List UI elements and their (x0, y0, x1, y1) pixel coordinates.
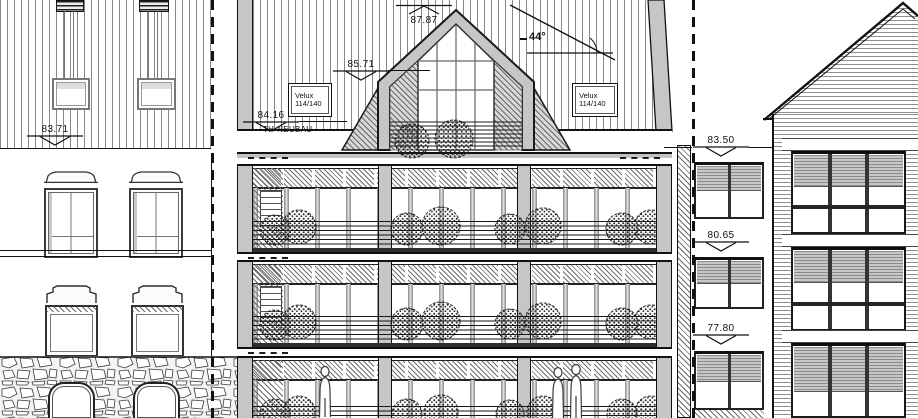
slab-dashes (620, 157, 660, 159)
window-shade (794, 155, 903, 187)
window-sill-hatch (694, 410, 764, 418)
elevation-drawing: 83.71 (0, 0, 918, 418)
window-mullion (828, 250, 832, 329)
left-building-window-lower (131, 280, 184, 357)
elevation-marker-main-ridge: 85.71 (333, 59, 389, 81)
window-pediment (129, 168, 183, 183)
window-mullion (865, 250, 869, 329)
roof-cheek (342, 88, 378, 150)
person-pair-figure (546, 363, 592, 418)
main-building-right-wall (656, 131, 672, 418)
marker-extension-line (388, 70, 430, 71)
stair-window (694, 257, 764, 309)
level-arrow-icon (27, 135, 83, 146)
window-glass (50, 314, 93, 352)
level-arrow-icon (333, 70, 389, 81)
stone-base (0, 356, 237, 418)
right-building-gable (760, 0, 918, 122)
right-building-window (791, 247, 906, 331)
window-mullion (828, 154, 832, 232)
window-frame (131, 305, 184, 357)
window-mullion (828, 346, 832, 416)
marker-extension-line (664, 147, 692, 148)
balcony-railing (253, 221, 656, 248)
window-frame (129, 188, 183, 258)
elevation-value: 87.87 (396, 15, 452, 26)
slab-dashes (248, 257, 288, 259)
stair-window (694, 162, 764, 219)
elevation-marker-left-eaves: 83.71 (27, 124, 83, 146)
window-mullion (865, 154, 869, 232)
roof-pitch-triangle (505, 2, 620, 64)
elevation-value: 83.71 (27, 124, 83, 135)
window-pediment (44, 168, 98, 183)
window-rail (793, 302, 904, 306)
left-building-window-upper (44, 168, 98, 258)
elevation-marker-80-65: 80.65 (693, 230, 749, 252)
right-building-window (791, 343, 906, 418)
window-rail (793, 205, 904, 209)
window-glass (133, 192, 179, 254)
spandrel-panels (253, 264, 656, 285)
level-arrow-icon (693, 334, 749, 345)
window-hood (45, 280, 98, 303)
left-building-window-lower (45, 280, 98, 357)
section-boundary-line (211, 0, 214, 418)
left-roof-skylight (137, 78, 176, 110)
roof-cheek (534, 88, 570, 150)
stair-window (694, 351, 764, 410)
level-arrow-icon (693, 241, 749, 252)
marker-extension-line (749, 147, 772, 148)
elevation-marker-83-50: 83.50 (693, 135, 749, 157)
left-building-cornice (0, 250, 211, 257)
window-lintel (133, 307, 182, 312)
pitch-dash (520, 38, 527, 40)
main-floor-2 (253, 262, 656, 347)
elevation-value: 83.50 (693, 135, 749, 146)
window-sill-band (782, 330, 918, 343)
window-hood (131, 280, 184, 303)
window-frame (45, 305, 98, 357)
elevation-value: 84.16 (243, 110, 299, 121)
elevation-marker-dormer-ridge: 87.87 (396, 4, 452, 26)
right-building-window (791, 151, 906, 234)
main-floor-3 (253, 166, 656, 252)
window-glass (52, 386, 91, 418)
window-glass (136, 314, 179, 352)
window-mullion (728, 260, 731, 307)
left-building-window-upper (129, 168, 183, 258)
roof-pitch-label: 44° (529, 31, 546, 43)
chimney-flue (148, 10, 158, 78)
elevation-value: 85.71 (333, 59, 389, 70)
velux-label: Velux 114/140 (575, 86, 615, 114)
window-mullion (865, 346, 869, 416)
window-mullion (728, 354, 731, 408)
elevation-value: 80.65 (693, 230, 749, 241)
left-roof-skylight (52, 78, 90, 110)
skylight-glass (141, 82, 172, 106)
window-lintel-band (782, 138, 918, 151)
floor-slab (237, 347, 672, 358)
slab-dashes (248, 352, 288, 354)
balcony-railing (253, 316, 656, 343)
window-shade (794, 347, 903, 392)
chimney-flue (64, 10, 74, 78)
level-arrow-icon (396, 4, 452, 15)
velux-roof-window: Velux 114/140 (572, 83, 618, 117)
window-mullion (728, 165, 731, 217)
window-frame (44, 188, 98, 258)
floor-slab (237, 252, 672, 262)
marker-extension-line (299, 121, 347, 122)
slab-dashes (248, 157, 288, 159)
building-label: TH-NEUBAU (263, 125, 312, 134)
window-lintel (47, 307, 96, 312)
skylight-glass (56, 82, 86, 106)
main-building-right-verge (630, 0, 675, 133)
elevation-value: 77.80 (693, 323, 749, 334)
level-arrow-icon (693, 146, 749, 157)
window-sill-band (782, 234, 918, 247)
window-shade (794, 251, 903, 283)
basement-arch-window (133, 382, 180, 418)
shrub (395, 124, 429, 158)
section-boundary-line (692, 0, 695, 418)
window-glass (48, 192, 94, 254)
person-figure (312, 365, 338, 418)
basement-arch-window (48, 382, 95, 418)
spandrel-panels (253, 168, 656, 189)
shrub (435, 120, 473, 158)
elevation-marker-77-80: 77.80 (693, 323, 749, 345)
window-glass (137, 386, 176, 418)
party-wall-section (677, 145, 691, 418)
